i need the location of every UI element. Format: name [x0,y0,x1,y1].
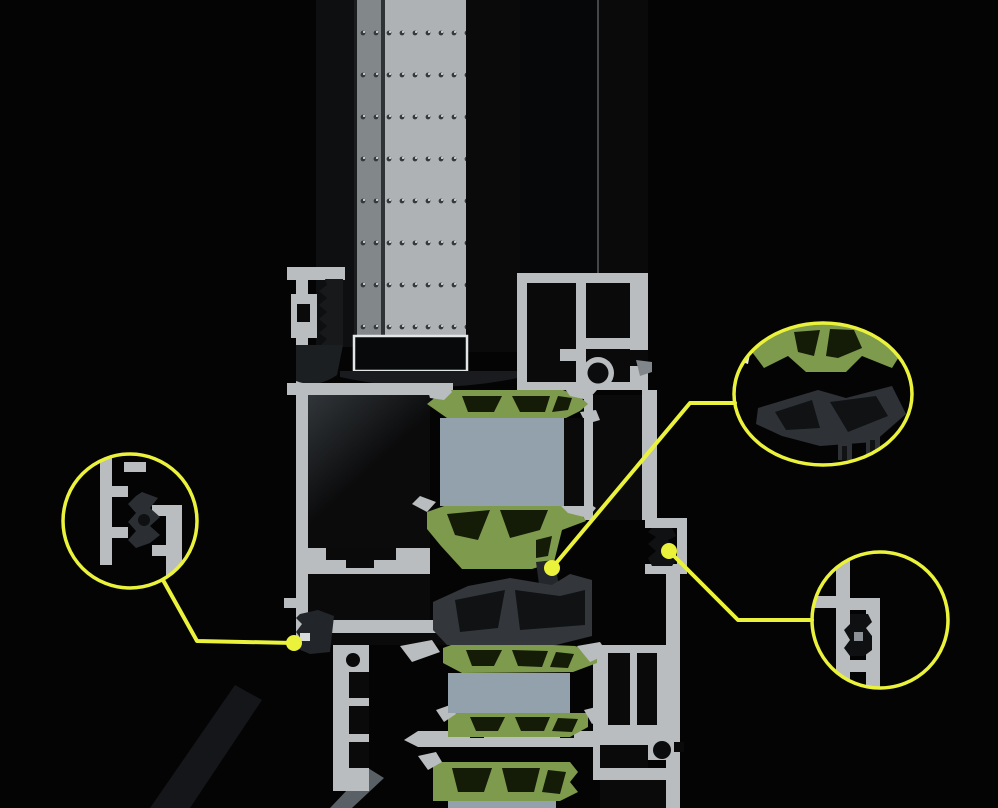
glass-edge-highlight [597,0,599,273]
main-cavity [308,395,430,555]
detail-alu-arm-bottom [112,527,128,538]
foam-side-shadow [564,418,584,506]
lower-cavity [308,574,430,620]
t-slot-throat [346,548,374,568]
frame-second-shelf [600,768,678,780]
detail-alu-channel-bottom [850,660,880,672]
detail-alu-top-flange [124,462,146,472]
target-dot [544,560,560,576]
detail-gasket-core [138,514,150,526]
bead-clip-hole [297,304,310,322]
frame-upper-cavity [593,395,642,520]
target-dot [286,635,302,651]
detail-gasket-glint [854,632,863,641]
glazing-rebate-shadow [599,0,648,273]
lower-chamber-cell-b [637,653,657,725]
column-cell-c [349,742,369,768]
hardware-shelf [576,338,648,349]
tb4-cutout-b [515,717,550,731]
foam-block-middle [448,673,570,713]
chamber-cavity-left [527,283,576,382]
frame-groove-notch [674,742,684,752]
outer-seal-gasket [296,610,334,654]
window-profile-render [0,0,998,808]
detail-alu-arm-top [112,486,128,497]
glass-pane-outer [520,0,599,273]
foam-block-upper [440,418,564,506]
spacer-perforation-dots [357,0,466,338]
target-dot [661,543,677,559]
column-cell-b [349,706,369,734]
cross-section-scene [0,0,998,808]
glass-pane-right [466,0,520,352]
screw-boss-hole [653,741,671,759]
detail-alu-channel-top [850,598,880,610]
sash-bottom-rail [330,620,448,633]
edge-sealant-block [354,336,467,371]
column-cell-a [349,672,369,698]
hardware-shelf-step [560,349,578,361]
cell-between-shelves [600,745,648,768]
tb5-cutout-b [502,768,540,792]
detail-alu-arm-right-bottom [152,545,166,556]
glazing-bead-top [287,267,345,280]
column-drain-hole [346,653,360,667]
gasket-retainer-tooth [300,633,310,641]
sash-wall-foot [284,598,310,608]
gasket-void-b [515,590,585,630]
screw-port-hole [588,363,609,384]
detail-alu-bar [100,455,112,565]
foam-block-bottom [448,801,556,808]
cell-below-shelf [600,780,666,808]
detail-gasket-tab-a-slot [842,446,847,460]
lower-chamber-cell-a [608,653,630,725]
